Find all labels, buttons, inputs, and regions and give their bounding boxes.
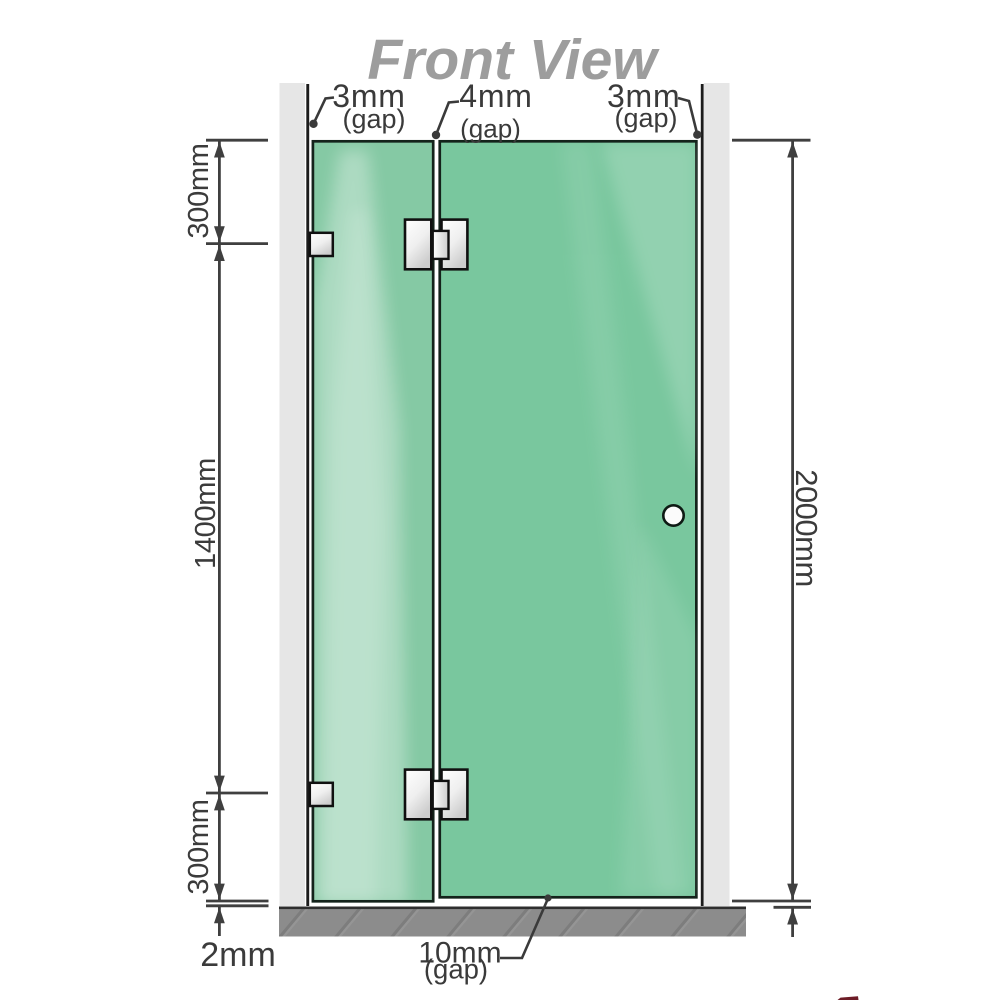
svg-text:(gap): (gap) [342, 104, 405, 134]
svg-text:2000mm: 2000mm [789, 469, 824, 587]
svg-text:300mm: 300mm [183, 799, 215, 894]
svg-text:1400mm: 1400mm [190, 458, 222, 569]
svg-text:(gap): (gap) [614, 103, 677, 133]
svg-text:(gap): (gap) [424, 954, 488, 985]
svg-text:2mm: 2mm [200, 936, 276, 974]
svg-text:(gap): (gap) [460, 114, 521, 144]
svg-text:4mm: 4mm [459, 78, 533, 114]
svg-text:300mm: 300mm [183, 143, 215, 238]
